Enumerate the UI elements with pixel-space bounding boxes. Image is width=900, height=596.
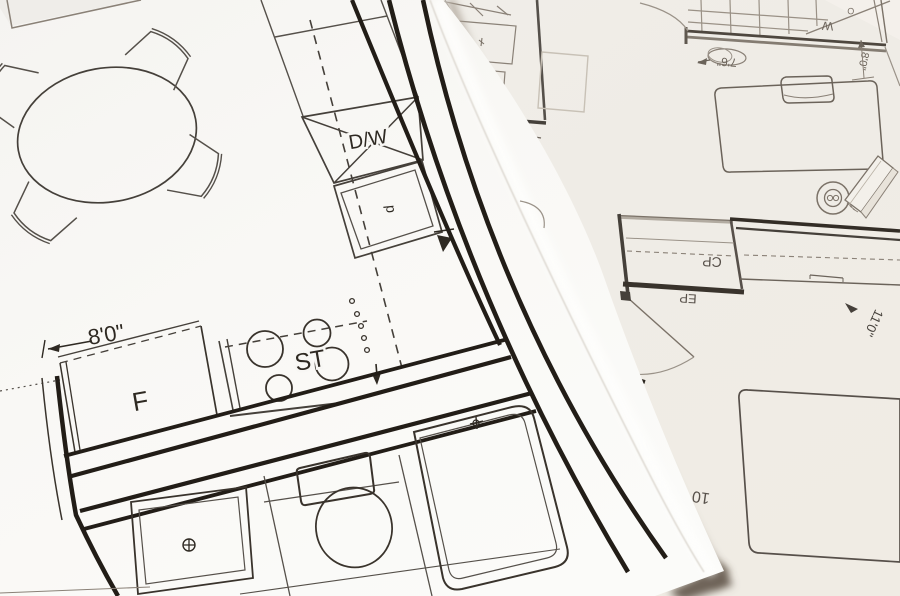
svg-text:O: O: [847, 6, 855, 16]
svg-text:d: d: [380, 204, 397, 213]
svg-text:W: W: [821, 19, 834, 34]
svg-text:ST: ST: [293, 345, 328, 377]
svg-text:EP: EP: [679, 291, 697, 307]
svg-text:CP: CP: [702, 254, 722, 271]
svg-text:7'6": 7'6": [716, 54, 737, 69]
